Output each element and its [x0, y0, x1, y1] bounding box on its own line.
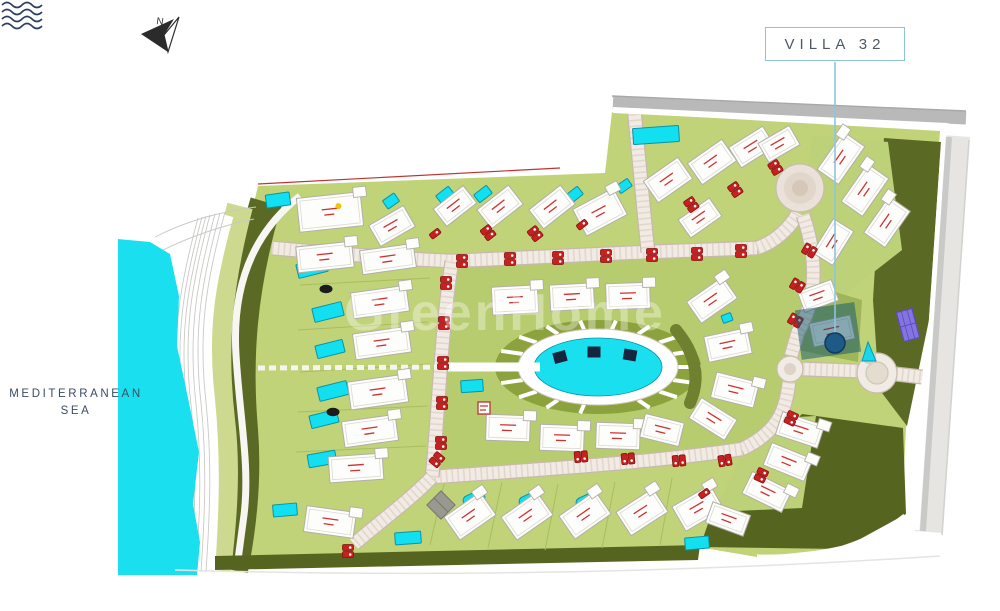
sea-label-line1: MEDITERRANEAN [4, 386, 148, 403]
car-icon [505, 253, 516, 259]
pool [265, 192, 291, 208]
wave-line [2, 17, 42, 22]
car-windshield [463, 256, 466, 259]
car-windshield [511, 254, 514, 257]
sea-label-line2: SEA [4, 403, 148, 420]
waves-icon [0, 0, 44, 30]
villa32-highlight [795, 302, 861, 360]
villa-wing [739, 322, 754, 334]
car-icon [438, 357, 449, 363]
car-icon [457, 255, 468, 261]
car-windshield [444, 358, 447, 361]
car-windshield [607, 258, 610, 261]
car-icon [736, 245, 747, 251]
villa-label-mark [350, 470, 360, 471]
car-icon [574, 451, 581, 462]
car-windshield [447, 278, 450, 281]
pool [461, 379, 484, 393]
car-icon [628, 453, 635, 464]
car-icon [553, 259, 564, 265]
car-icon [647, 256, 658, 262]
site-plan-map: N GreenHome [0, 0, 1000, 611]
car-windshield [559, 260, 562, 263]
pool [395, 531, 422, 545]
villa-wing [523, 411, 536, 421]
car-icon [457, 262, 468, 268]
car-windshield [511, 261, 514, 264]
car-icon [343, 545, 354, 551]
car-icon [621, 453, 628, 464]
sea-label: MEDITERRANEAN SEA [4, 386, 148, 420]
lagoon-platform [588, 347, 601, 358]
car-windshield [742, 246, 745, 249]
watermark-text: GreenHome [344, 284, 666, 342]
car-icon [436, 437, 447, 443]
car-windshield [653, 257, 656, 260]
villa-wing [349, 507, 363, 519]
car-icon [436, 444, 447, 450]
roundabout [784, 363, 796, 375]
villa-label-mark [610, 433, 626, 434]
car-windshield [443, 398, 446, 401]
car-windshield [349, 553, 352, 556]
car-icon [736, 252, 747, 258]
car-icon [343, 552, 354, 558]
pool [273, 503, 298, 517]
car-windshield [443, 405, 446, 408]
wave-line [2, 3, 42, 8]
car-windshield [349, 546, 352, 549]
car-icon [505, 260, 516, 266]
car-icon [601, 250, 612, 256]
car-icon [438, 364, 449, 370]
villa32-callout-box: VILLA 32 [765, 27, 905, 61]
pool [632, 125, 679, 144]
car-windshield [607, 251, 610, 254]
car-windshield [653, 250, 656, 253]
roundabout [866, 362, 888, 384]
car-windshield [442, 445, 445, 448]
car-icon [601, 257, 612, 263]
villa-wing [387, 409, 401, 421]
car-windshield [442, 438, 445, 441]
car-windshield [444, 365, 447, 368]
car-icon [581, 451, 588, 462]
car-icon [437, 404, 448, 410]
car-windshield [698, 256, 701, 259]
car-icon [679, 455, 686, 466]
car-icon [692, 248, 703, 254]
villa-label-mark [500, 425, 516, 426]
car-windshield [559, 253, 562, 256]
wave-line [2, 10, 42, 15]
north-label: N [156, 16, 165, 28]
roundabout [792, 180, 808, 196]
villa-label-mark [554, 435, 570, 436]
car-icon [672, 455, 679, 466]
site-plan-page: N GreenHome VILLA 32 MEDITERRANEAN SEA [0, 0, 1000, 611]
villa-wing [405, 238, 419, 250]
villa-wing [344, 236, 358, 247]
car-windshield [698, 249, 701, 252]
car-icon [441, 277, 452, 283]
car-icon [692, 255, 703, 261]
car-windshield [463, 263, 466, 266]
villa-wing [353, 186, 367, 197]
car-icon [647, 249, 658, 255]
villa-wing [577, 421, 590, 431]
car-icon [553, 252, 564, 258]
villa-wing [397, 368, 411, 380]
car-icon [437, 397, 448, 403]
technical-box [478, 402, 490, 414]
lagoon-platform [623, 348, 638, 361]
pool [685, 536, 710, 550]
dark-planter [320, 285, 333, 293]
villa-wing [375, 448, 389, 459]
dark-planter [327, 408, 340, 416]
north-arrow: N [141, 16, 179, 52]
road-surface [803, 369, 857, 371]
wave-line [2, 24, 42, 29]
car-windshield [742, 253, 745, 256]
villa32-marker [825, 333, 845, 353]
